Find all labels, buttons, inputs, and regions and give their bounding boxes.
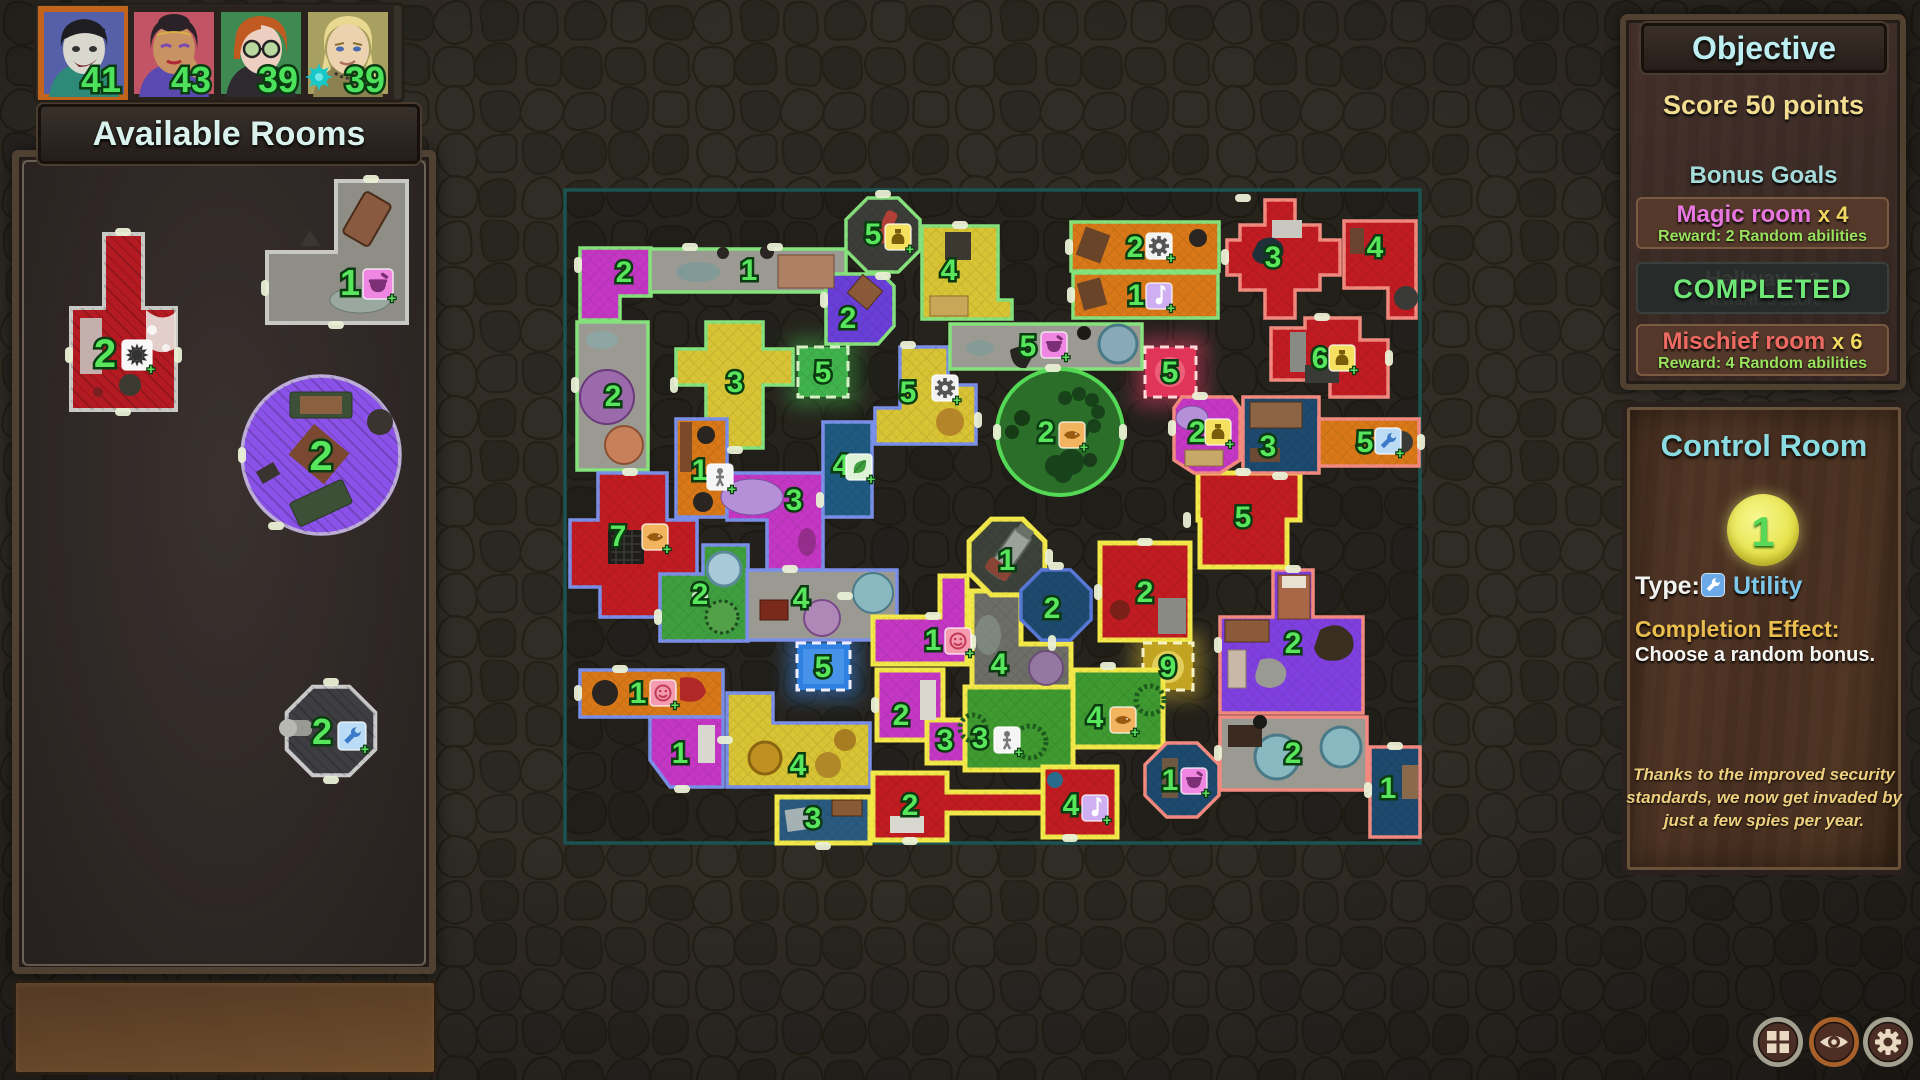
svg-text:5: 5 (1162, 356, 1179, 389)
svg-text:+: + (663, 541, 671, 557)
svg-text:2: 2 (1189, 416, 1206, 449)
svg-text:4: 4 (793, 582, 810, 615)
svg-text:2: 2 (1137, 576, 1154, 609)
svg-text:+: + (1103, 812, 1111, 828)
svg-text:3: 3 (937, 724, 954, 757)
svg-text:1: 1 (692, 454, 709, 487)
svg-text:5: 5 (1357, 426, 1374, 459)
svg-text:2: 2 (1127, 231, 1144, 264)
svg-text:5: 5 (865, 218, 882, 251)
svg-text:+: + (388, 290, 396, 306)
svg-text:2: 2 (312, 711, 332, 752)
svg-text:39: 39 (258, 59, 298, 100)
svg-text:+: + (953, 392, 961, 408)
svg-text:1: 1 (1162, 764, 1179, 797)
svg-text:+: + (1167, 250, 1175, 266)
svg-text:1: 1 (1380, 772, 1397, 805)
svg-text:1: 1 (340, 262, 360, 303)
svg-text:1: 1 (672, 737, 689, 770)
svg-text:3: 3 (786, 484, 803, 517)
svg-text:+: + (1226, 436, 1234, 452)
svg-text:+: + (1396, 445, 1404, 461)
svg-text:6: 6 (1312, 342, 1329, 375)
svg-text:41: 41 (81, 59, 121, 100)
svg-text:3: 3 (972, 722, 989, 755)
svg-text:2: 2 (902, 789, 919, 822)
svg-text:3: 3 (1265, 241, 1282, 274)
svg-text:+: + (1062, 349, 1070, 365)
svg-text:4: 4 (1063, 789, 1080, 822)
svg-text:43: 43 (171, 59, 211, 100)
svg-text:+: + (906, 241, 914, 257)
svg-text:4: 4 (991, 648, 1008, 681)
svg-text:5: 5 (815, 356, 832, 389)
svg-text:2: 2 (692, 578, 709, 611)
svg-text:+: + (1167, 300, 1175, 316)
svg-text:+: + (867, 471, 875, 487)
svg-text:1: 1 (741, 254, 758, 287)
svg-text:+: + (728, 481, 736, 497)
svg-text:9: 9 (1160, 651, 1177, 684)
svg-text:4: 4 (1087, 701, 1104, 734)
svg-text:5: 5 (815, 651, 832, 684)
svg-text:5: 5 (1020, 330, 1037, 363)
svg-text:2: 2 (1038, 416, 1055, 449)
svg-text:1: 1 (630, 677, 647, 710)
svg-text:7: 7 (610, 520, 627, 553)
svg-text:2: 2 (1285, 627, 1302, 660)
svg-text:2: 2 (605, 380, 622, 413)
svg-text:4: 4 (1367, 231, 1384, 264)
svg-text:5: 5 (900, 376, 917, 409)
svg-text:2: 2 (309, 432, 332, 479)
svg-text:5: 5 (1235, 501, 1252, 534)
svg-text:+: + (1350, 362, 1358, 378)
svg-text:1: 1 (1128, 279, 1145, 312)
svg-text:2: 2 (616, 256, 633, 289)
svg-text:+: + (1202, 785, 1210, 801)
svg-text:39: 39 (345, 59, 385, 100)
svg-text:+: + (147, 361, 155, 377)
svg-text:+: + (361, 741, 369, 757)
svg-text:3: 3 (727, 366, 744, 399)
svg-text:1: 1 (925, 624, 942, 657)
svg-text:3: 3 (805, 802, 822, 835)
svg-text:+: + (1080, 439, 1088, 455)
svg-text:+: + (671, 697, 679, 713)
svg-text:+: + (1015, 744, 1023, 760)
svg-text:+: + (966, 645, 974, 661)
svg-text:1: 1 (999, 544, 1016, 577)
svg-text:+: + (1131, 724, 1139, 740)
svg-text:2: 2 (840, 302, 857, 335)
svg-text:2: 2 (893, 699, 910, 732)
svg-text:2: 2 (1285, 737, 1302, 770)
svg-text:4: 4 (941, 254, 958, 287)
svg-text:3: 3 (1260, 430, 1277, 463)
svg-text:2: 2 (1044, 592, 1061, 625)
svg-text:2: 2 (94, 332, 116, 376)
svg-text:4: 4 (790, 749, 807, 782)
